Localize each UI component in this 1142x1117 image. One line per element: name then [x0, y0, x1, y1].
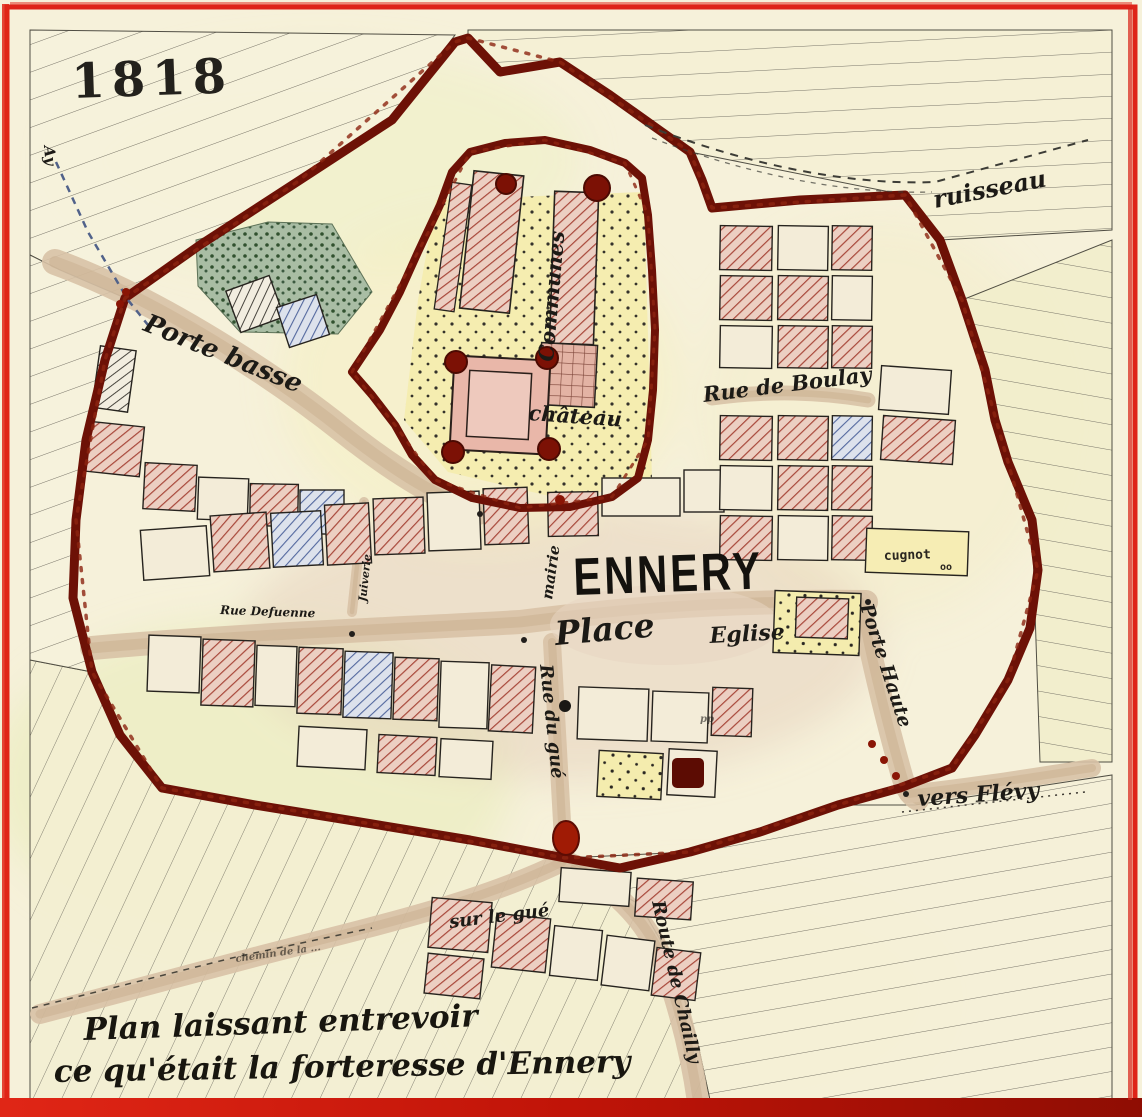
building-parcel	[720, 326, 773, 369]
keep-tower-sw	[442, 441, 464, 463]
building-parcel	[201, 639, 255, 707]
red-dot	[892, 772, 900, 780]
building-parcel	[795, 597, 848, 639]
building-parcel	[879, 366, 952, 415]
building-parcel	[778, 516, 829, 561]
building-parcel	[255, 645, 297, 706]
map-1818-ennery: 1818AyruisseauPorte basseCommuneschâteau…	[0, 0, 1142, 1117]
building-parcel	[373, 497, 425, 555]
building-parcel	[377, 735, 437, 776]
building-parcel	[778, 276, 829, 321]
label-date-1818: 1818	[70, 48, 233, 110]
building-parcel	[297, 647, 343, 714]
frame-top-accent	[10, 2, 1132, 5]
label-pp: pp	[700, 714, 714, 725]
building-parcel	[601, 935, 655, 990]
building-parcel	[550, 926, 603, 981]
building-parcel	[140, 526, 209, 580]
building-parcel	[439, 661, 489, 729]
building-parcel	[597, 750, 663, 799]
building-parcel	[393, 657, 439, 720]
label-ay: Ay	[40, 143, 60, 168]
dark-red-block	[672, 758, 704, 788]
black-dot	[349, 631, 355, 637]
frame-bottom-band	[0, 1098, 1142, 1117]
red-blob	[553, 821, 579, 855]
building-parcel	[832, 466, 873, 511]
label-cugnot: cugnot	[884, 547, 931, 564]
building-parcel	[832, 416, 873, 461]
building-parcel	[720, 416, 773, 461]
building-parcel	[778, 466, 829, 511]
building-parcel	[684, 470, 724, 512]
frame-left-band	[2, 4, 9, 1108]
building-parcel	[147, 635, 201, 693]
red-dot	[122, 288, 130, 296]
black-dot	[477, 511, 483, 517]
building-parcel	[711, 687, 753, 736]
black-dot	[903, 791, 909, 797]
building-parcel	[778, 326, 829, 369]
tower-communes-west	[496, 174, 516, 194]
keep-tower-nw	[445, 351, 467, 373]
building-parcel	[832, 276, 873, 321]
label-cugnot-oo: oo	[940, 562, 952, 573]
keep-tower-se	[538, 438, 560, 460]
label-eglise: Eglise	[708, 619, 786, 649]
building-parcel	[720, 276, 773, 321]
red-dot	[868, 740, 876, 748]
building-parcel	[720, 226, 773, 271]
building-parcel	[343, 651, 393, 719]
building-parcel	[832, 226, 873, 271]
building-parcel	[881, 416, 956, 465]
building-parcel	[143, 463, 197, 512]
building-parcel	[488, 665, 535, 733]
building-parcel	[210, 512, 270, 572]
tower-communes-east	[584, 175, 610, 201]
building-parcel	[483, 487, 529, 545]
red-dot	[880, 756, 888, 764]
ennery-map-svg: 1818AyruisseauPorte basseCommuneschâteau…	[0, 0, 1142, 1117]
black-dot	[521, 637, 527, 643]
frame-right-band	[1128, 8, 1132, 1100]
building-parcel	[577, 687, 649, 741]
building-parcel	[271, 511, 324, 568]
building-parcel	[424, 953, 484, 999]
building-parcel	[297, 726, 367, 770]
building-parcel	[778, 416, 829, 461]
building-parcel	[559, 868, 631, 907]
red-dot	[116, 300, 124, 308]
building-parcel	[439, 739, 493, 780]
red-dot	[555, 495, 565, 505]
building-parcel	[778, 226, 829, 271]
label-ennery: ENNERY	[572, 542, 764, 607]
building-parcel	[720, 466, 773, 511]
